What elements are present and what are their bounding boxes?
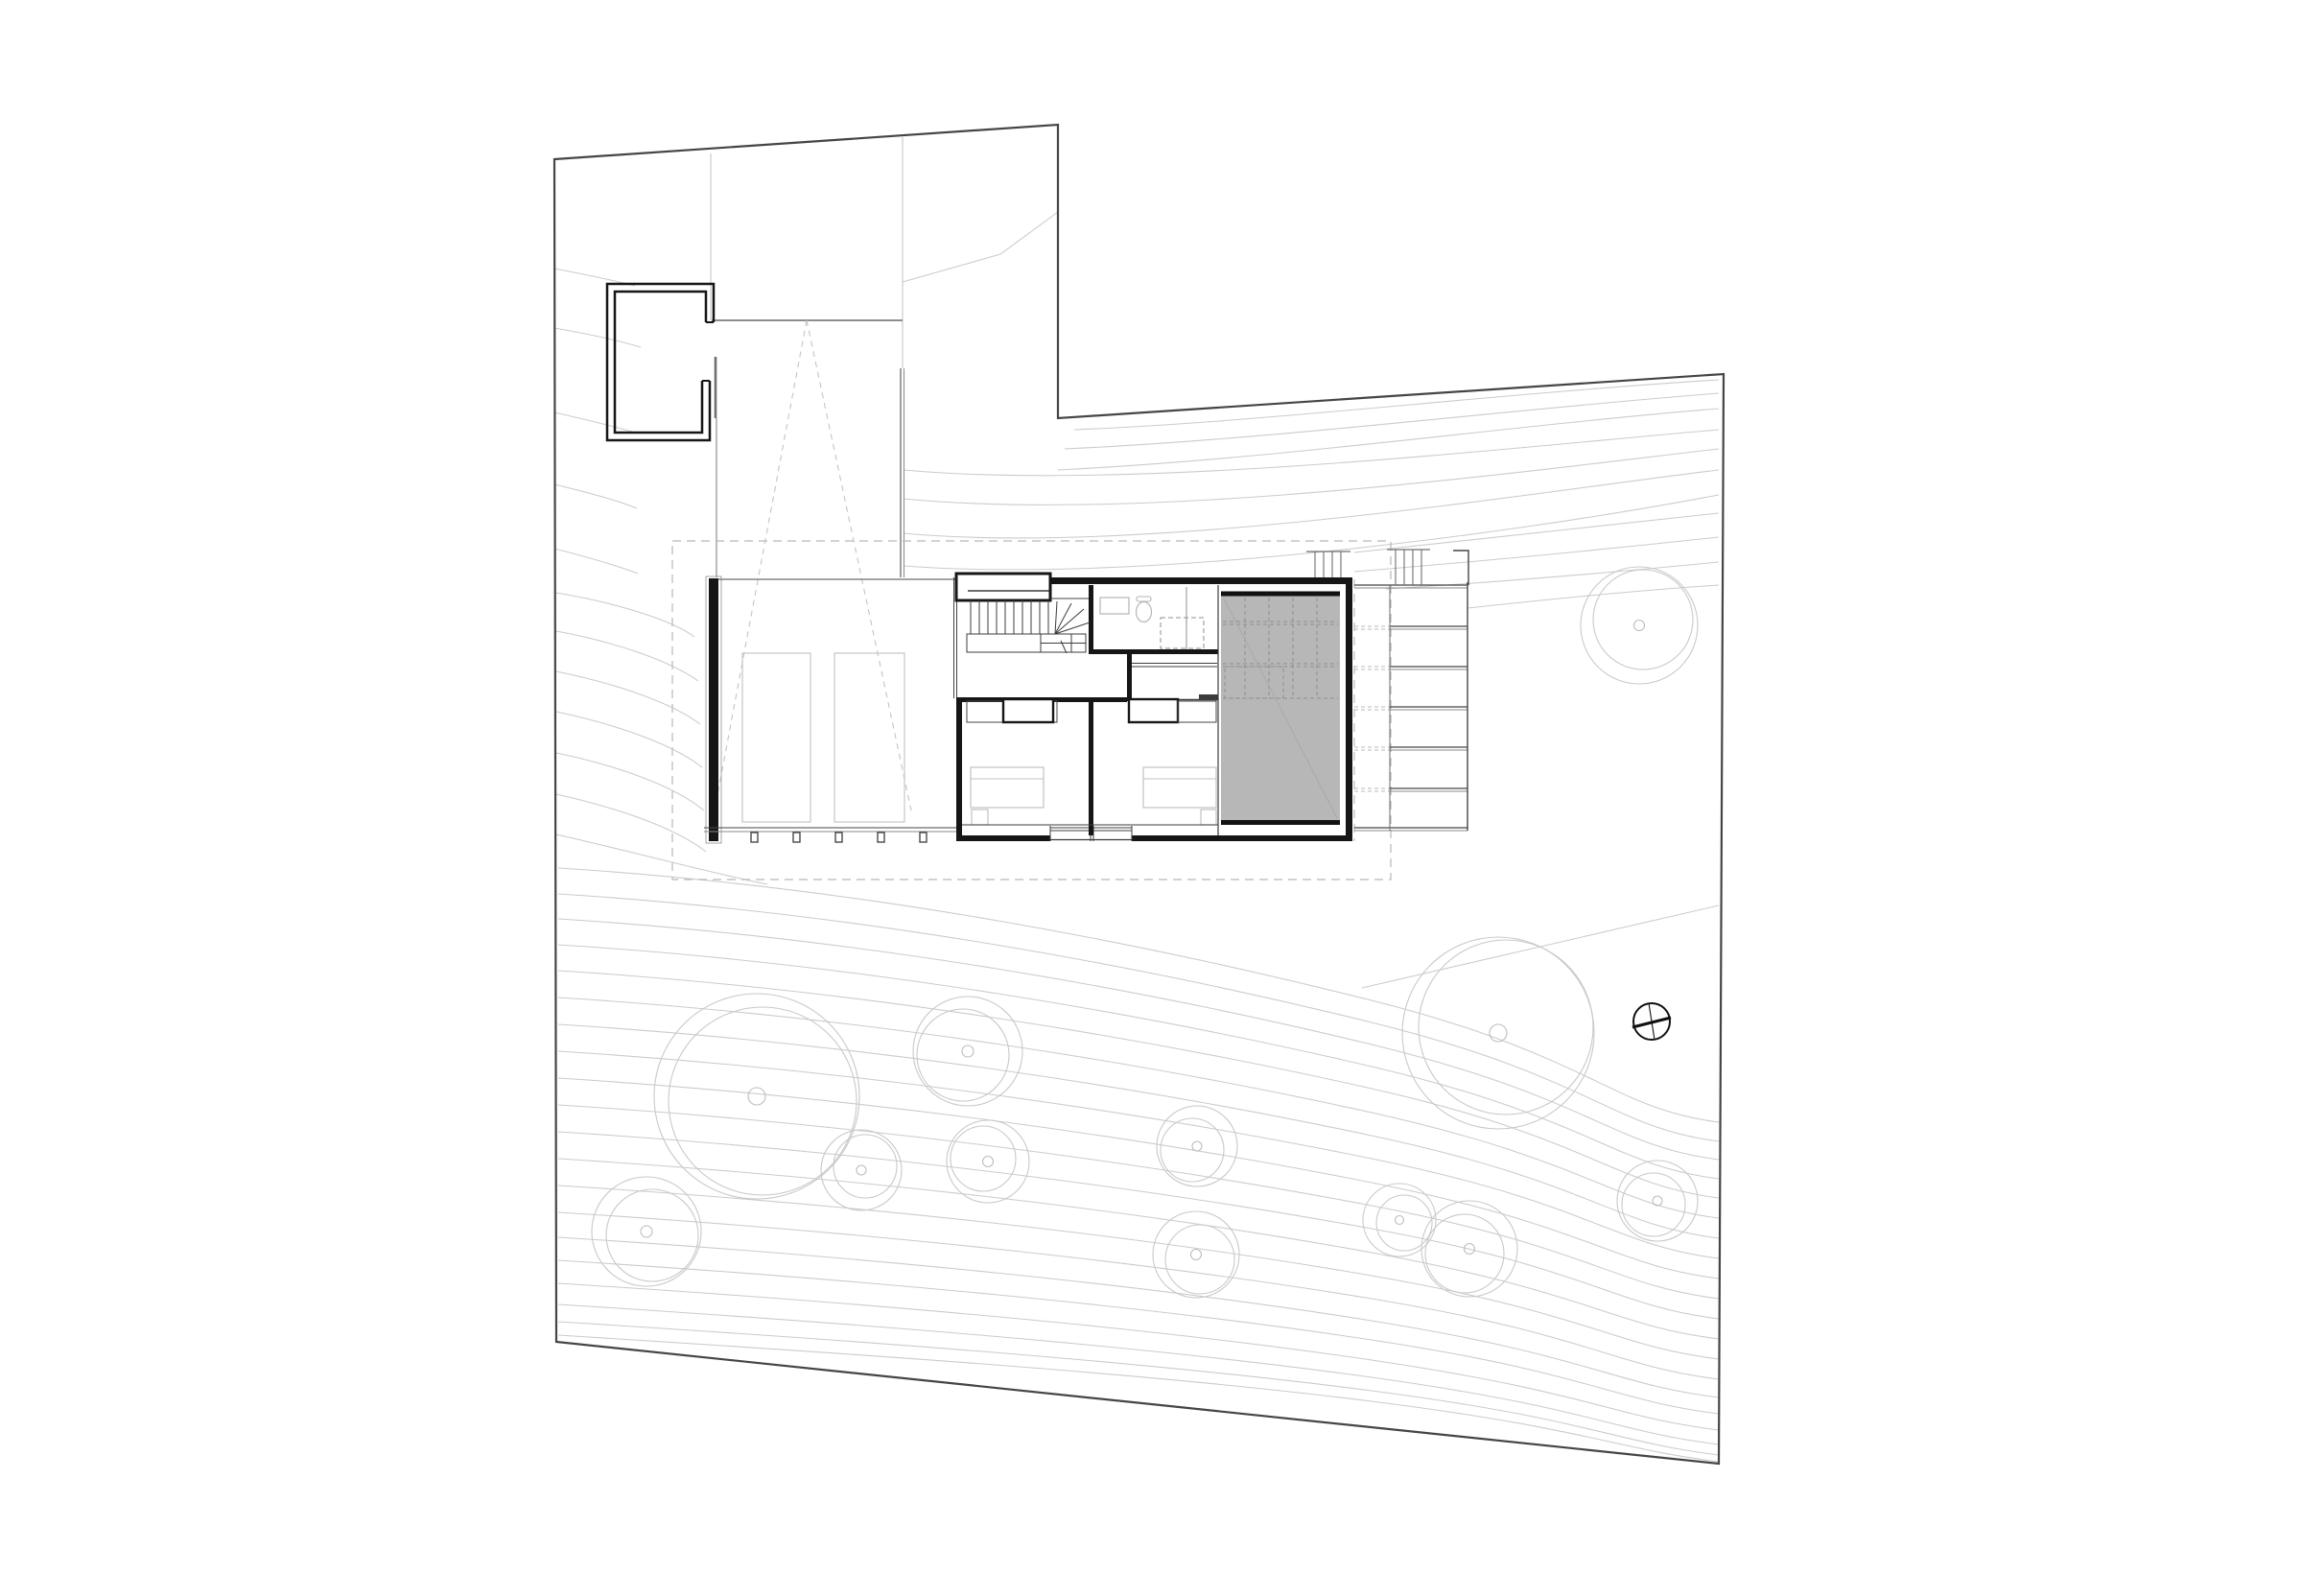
trees-layer [592,567,1698,1298]
property-boundary-layer [554,125,1724,1464]
carport-layer [704,576,957,843]
house-floorplan-layer [954,574,1353,842]
site-plan-svg [0,0,2301,1596]
outbuilding-walls-layer [607,284,714,440]
site-plan [0,0,2301,1596]
survey-marker-icon [1632,1003,1671,1040]
driveway-sightline-layer [715,320,911,810]
